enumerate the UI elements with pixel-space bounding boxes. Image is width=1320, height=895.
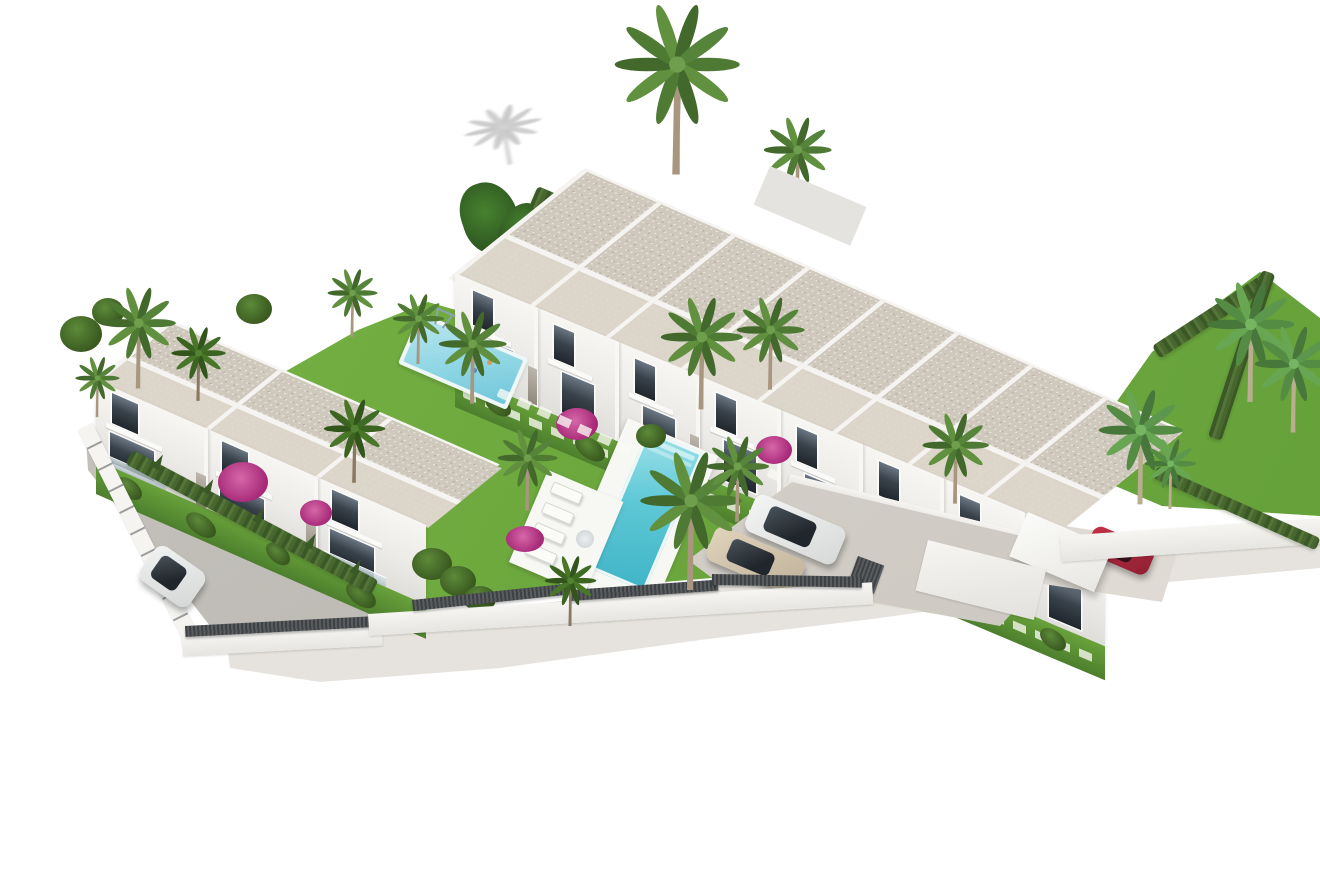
bougainvillea <box>218 462 268 502</box>
bougainvillea <box>300 500 332 526</box>
bougainvillea <box>506 526 544 552</box>
shrub <box>1040 624 1066 655</box>
palm-tree <box>916 412 994 505</box>
palm-tree <box>72 356 122 418</box>
palm-tree <box>318 398 390 484</box>
palm-tree <box>602 2 750 177</box>
render-scene <box>0 0 1320 895</box>
stone-pillar <box>528 366 537 406</box>
palm-tree <box>730 296 810 391</box>
palm-tree <box>1140 438 1200 510</box>
shrub <box>636 424 666 448</box>
palm-tree <box>166 326 230 402</box>
palm-tree <box>700 435 774 523</box>
palm-tree <box>388 293 448 365</box>
palm-tree <box>540 555 600 627</box>
palm-tree <box>323 268 381 338</box>
unit-divider <box>615 340 619 442</box>
car-windshield <box>149 553 189 592</box>
palm-tree <box>492 428 562 512</box>
parasol <box>573 527 597 551</box>
shrub <box>236 294 272 324</box>
window <box>797 427 817 469</box>
window <box>554 325 574 367</box>
palm-tree <box>1254 302 1320 457</box>
